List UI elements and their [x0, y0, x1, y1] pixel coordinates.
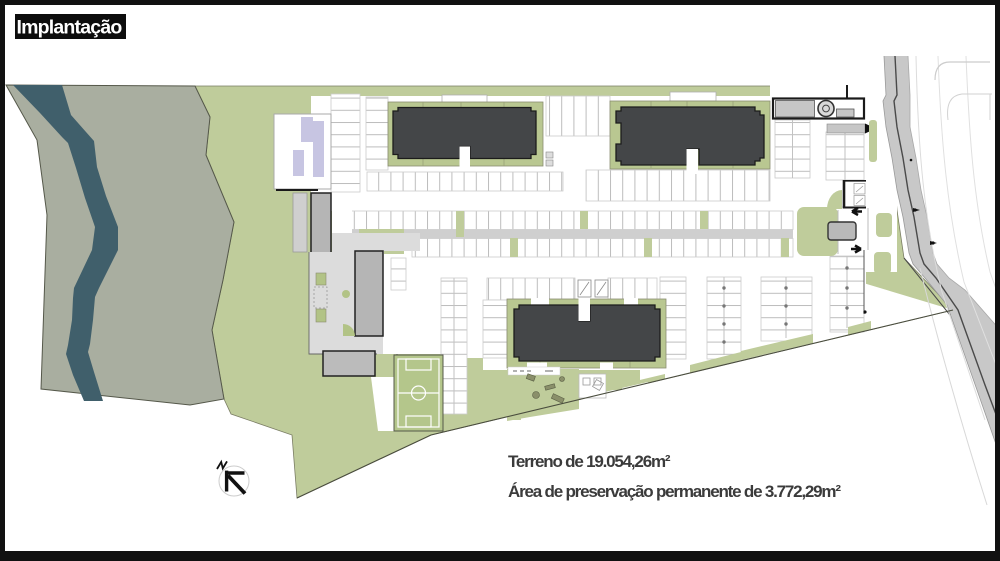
svg-text:Área de preservação permanente: Área de preservação permanente de 3.772,…	[508, 482, 841, 501]
svg-text:Implantação: Implantação	[17, 17, 123, 39]
svg-text:Terreno de 19.054,26m²: Terreno de 19.054,26m²	[508, 452, 671, 471]
